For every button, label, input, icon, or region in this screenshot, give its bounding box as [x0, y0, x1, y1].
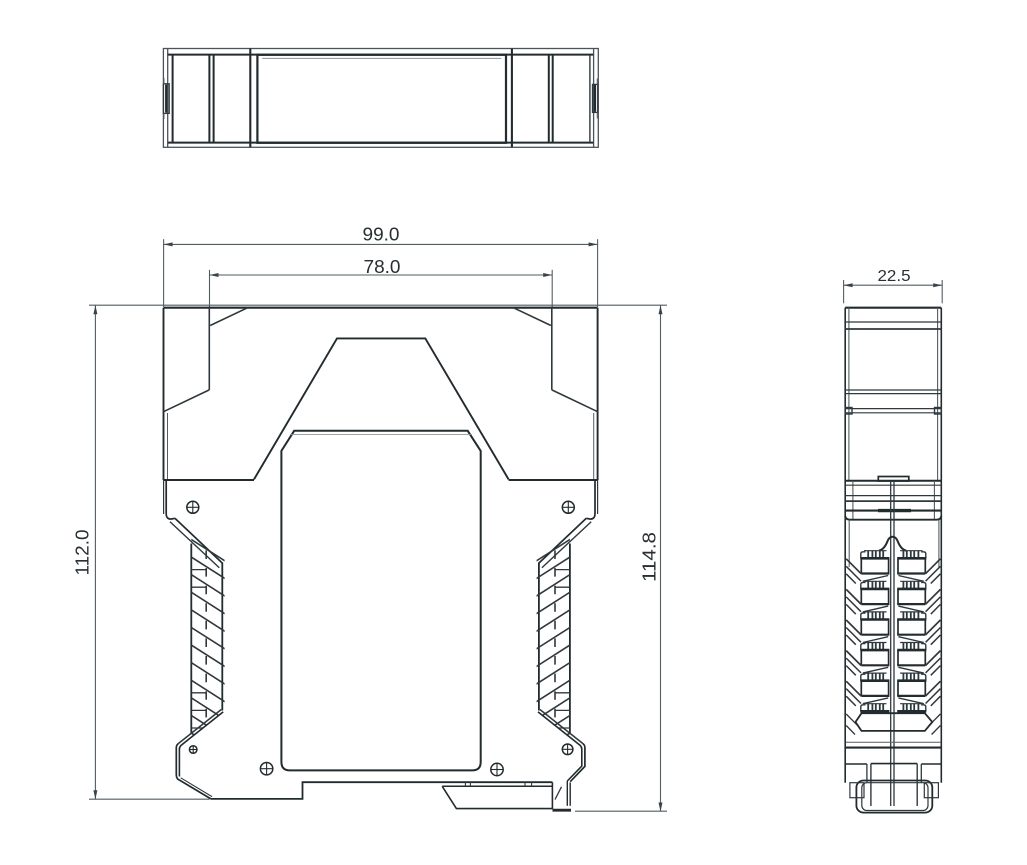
- svg-text:78.0: 78.0: [364, 257, 401, 277]
- svg-text:22.5: 22.5: [878, 268, 911, 285]
- svg-text:99.0: 99.0: [363, 225, 400, 245]
- svg-text:112.0: 112.0: [73, 530, 93, 576]
- svg-text:114.8: 114.8: [640, 532, 660, 582]
